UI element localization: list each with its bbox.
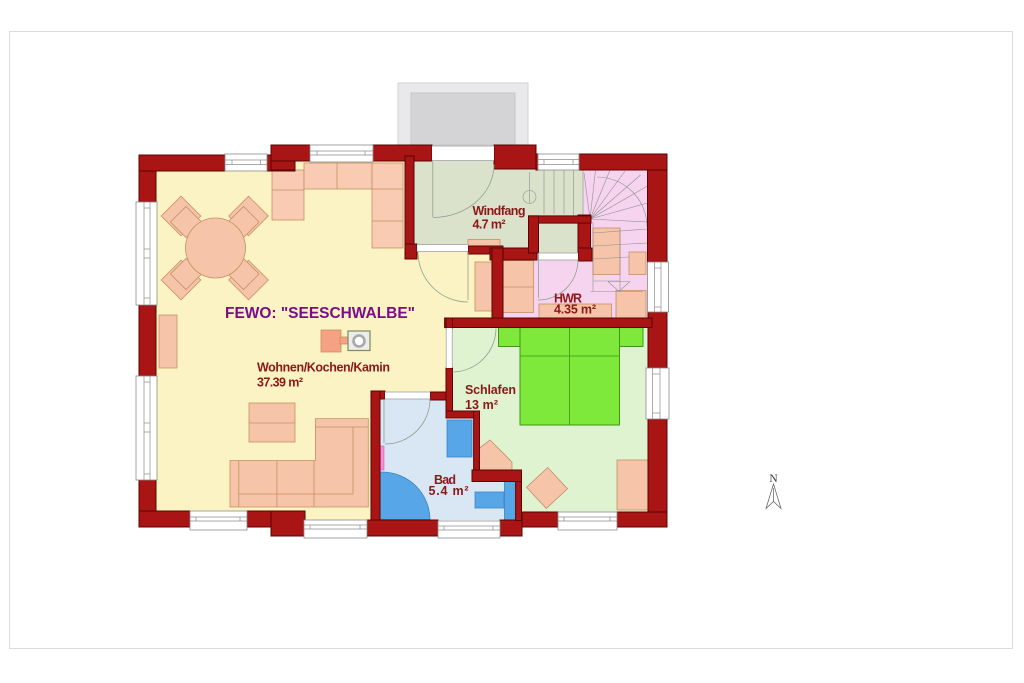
svg-text:Windfang: Windfang xyxy=(473,204,526,218)
svg-text:4.35 m²: 4.35 m² xyxy=(554,303,596,317)
svg-text:5.4 m²: 5.4 m² xyxy=(429,484,469,498)
svg-text:Schlafen: Schlafen xyxy=(465,383,516,397)
svg-text:N: N xyxy=(769,473,778,485)
svg-text:37.39 m²: 37.39 m² xyxy=(257,376,303,390)
svg-text:FEWO: "SEESCHWALBE": FEWO: "SEESCHWALBE" xyxy=(225,305,415,322)
svg-text:13 m²: 13 m² xyxy=(465,398,498,412)
svg-text:Wohnen/Kochen/Kamin: Wohnen/Kochen/Kamin xyxy=(257,361,390,375)
svg-text:4.7 m²: 4.7 m² xyxy=(473,218,506,232)
